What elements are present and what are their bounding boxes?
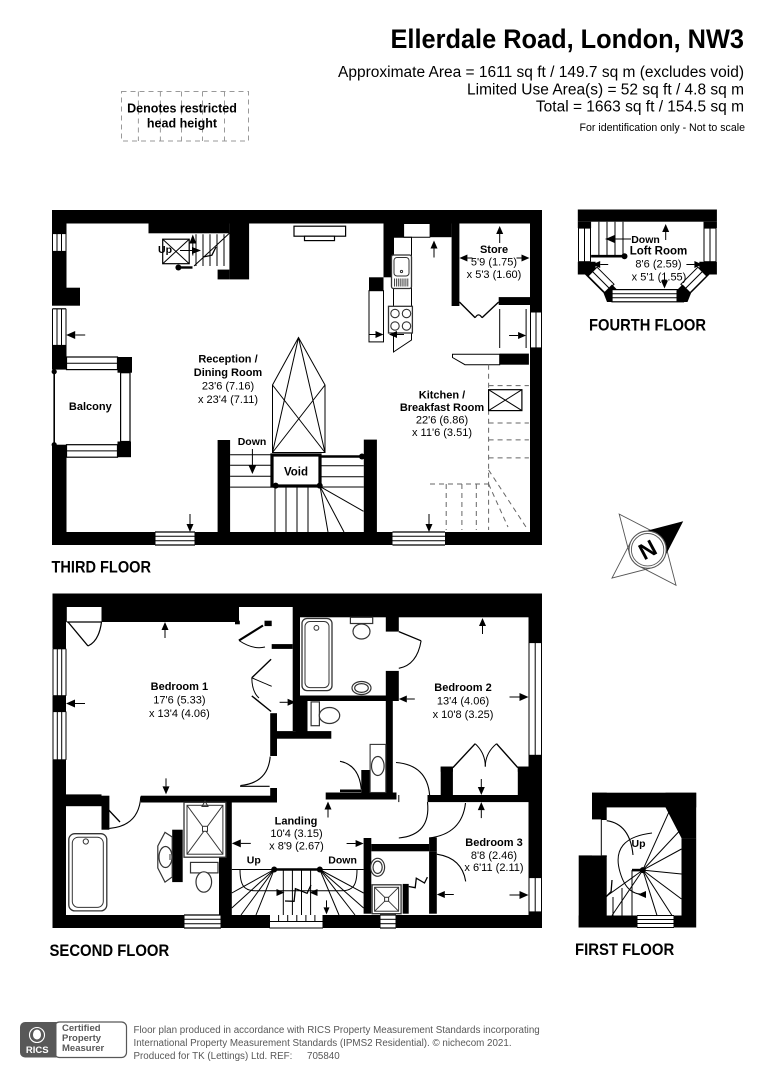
svg-text:Down: Down xyxy=(631,234,660,246)
svg-text:8'6 (2.59): 8'6 (2.59) xyxy=(635,259,681,271)
svg-text:Up: Up xyxy=(632,838,646,850)
svg-text:Up: Up xyxy=(247,855,261,867)
svg-text:Store: Store xyxy=(480,244,508,256)
svg-text:x 8'9 (2.67): x 8'9 (2.67) xyxy=(269,841,324,853)
svg-text:Measurer: Measurer xyxy=(62,1043,105,1054)
svg-text:Landing: Landing xyxy=(275,816,318,828)
svg-text:Produced for TK (Lettings) Ltd: Produced for TK (Lettings) Ltd. REF: xyxy=(134,1051,293,1062)
svg-text:Up: Up xyxy=(158,244,172,256)
svg-text:For identification only - Not: For identification only - Not to scale xyxy=(580,122,746,134)
svg-text:International Property Measure: International Property Measurement Stand… xyxy=(134,1038,512,1049)
svg-text:Dining Room: Dining Room xyxy=(194,367,263,379)
svg-text:Bedroom 1: Bedroom 1 xyxy=(151,681,208,693)
svg-text:Breakfast Room: Breakfast Room xyxy=(400,402,485,414)
svg-text:FOURTH FLOOR: FOURTH FLOOR xyxy=(589,316,706,335)
svg-text:THIRD FLOOR: THIRD FLOOR xyxy=(52,557,152,576)
svg-text:Ellerdale Road, London, NW3: Ellerdale Road, London, NW3 xyxy=(391,24,745,54)
svg-text:Total = 1663 sq ft / 154.5 sq: Total = 1663 sq ft / 154.5 sq m xyxy=(536,99,744,116)
svg-text:Balcony: Balcony xyxy=(69,401,113,413)
svg-text:x 6'11 (2.11): x 6'11 (2.11) xyxy=(464,862,523,874)
svg-text:Limited Use Area(s) = 52 sq ft: Limited Use Area(s) = 52 sq ft / 4.8 sq … xyxy=(467,82,744,99)
svg-text:SECOND FLOOR: SECOND FLOOR xyxy=(50,941,170,960)
svg-text:x 10'8 (3.25): x 10'8 (3.25) xyxy=(433,709,494,721)
svg-text:Denotes restricted: Denotes restricted xyxy=(127,102,237,116)
svg-text:5'9 (1.75): 5'9 (1.75) xyxy=(471,257,517,269)
svg-text:x 11'6 (3.51): x 11'6 (3.51) xyxy=(412,427,472,439)
svg-text:10'4 (3.15): 10'4 (3.15) xyxy=(270,828,322,840)
svg-text:13'4 (4.06): 13'4 (4.06) xyxy=(437,696,489,708)
svg-text:Bedroom 3: Bedroom 3 xyxy=(465,837,522,849)
svg-text:x 5'3 (1.60): x 5'3 (1.60) xyxy=(467,269,522,281)
svg-text:22'6 (6.86): 22'6 (6.86) xyxy=(416,414,468,426)
svg-text:Down: Down xyxy=(238,436,267,448)
svg-text:Floor plan produced in accorda: Floor plan produced in accordance with R… xyxy=(134,1025,540,1036)
svg-text:Kitchen /: Kitchen / xyxy=(419,389,465,401)
svg-text:Approximate Area = 1611 sq ft: Approximate Area = 1611 sq ft / 149.7 sq… xyxy=(338,64,744,81)
svg-text:23'6 (7.16): 23'6 (7.16) xyxy=(202,381,254,393)
svg-text:8'8 (2.46): 8'8 (2.46) xyxy=(471,850,517,862)
svg-text:705840: 705840 xyxy=(307,1051,340,1062)
svg-text:x 5'1 (1.55): x 5'1 (1.55) xyxy=(632,272,687,284)
svg-text:x 13'4 (4.06): x 13'4 (4.06) xyxy=(149,708,210,720)
svg-text:Void: Void xyxy=(284,467,308,479)
svg-text:x 23'4 (7.11): x 23'4 (7.11) xyxy=(198,394,258,406)
svg-text:Loft Room: Loft Room xyxy=(630,246,687,258)
svg-text:RICS: RICS xyxy=(26,1045,49,1056)
svg-text:Reception /: Reception / xyxy=(198,354,257,366)
svg-text:FIRST FLOOR: FIRST FLOOR xyxy=(575,940,674,959)
svg-text:Bedroom 2: Bedroom 2 xyxy=(434,682,491,694)
svg-text:head height: head height xyxy=(147,117,218,131)
svg-text:17'6 (5.33): 17'6 (5.33) xyxy=(153,695,205,707)
svg-text:Down: Down xyxy=(328,855,357,867)
